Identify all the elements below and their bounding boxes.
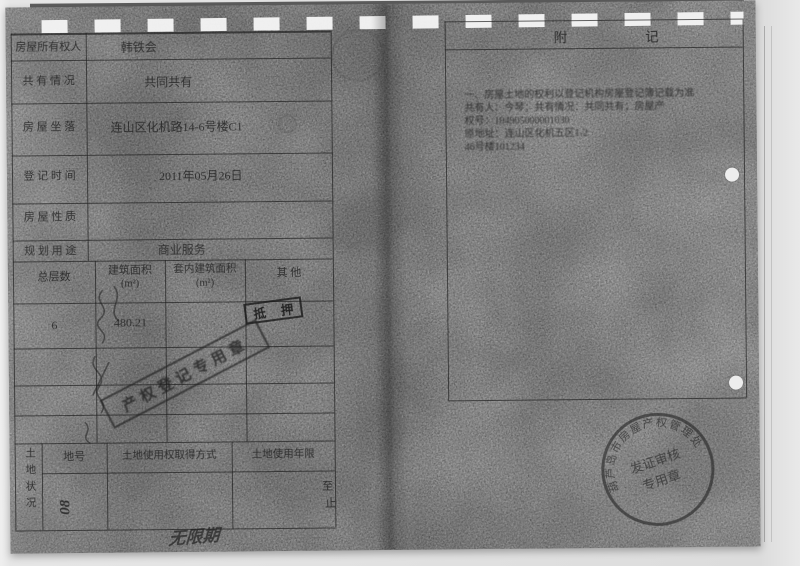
owner-name: 韩铁会 — [121, 41, 157, 55]
margin-handwriting-scribble — [64, 272, 156, 448]
col-header-other: 其 他 — [245, 266, 333, 279]
col-header-plot-number: 地号 — [42, 451, 107, 464]
handwritten-term-note: 无限期 — [168, 527, 220, 550]
punch-hole-bottom — [729, 376, 743, 390]
row-label-house-nature: 房 屋 性 质 — [12, 211, 87, 224]
row-label-location: 房 屋 坐 落 — [11, 121, 86, 134]
col-header-land-acquisition: 土地使用权取得方式 — [107, 449, 232, 462]
appendix-notes: 一、房屋土地的权利以登记机构房屋登记簿记载为准 共有人：今琴；共有情况：共同共有… — [464, 87, 733, 155]
location-value: 连山区化机路14-6号楼C1 — [110, 120, 242, 134]
paper-stack-edge — [764, 26, 765, 542]
reg-date-value: 2011年05月26日 — [159, 169, 243, 183]
appendix-note-line: 一、房屋土地的权利以登记机构房屋登记簿记载为准 — [464, 87, 732, 103]
term-from-char: 至 — [322, 480, 333, 492]
appendix-note-line: 46号楼101234 — [465, 139, 733, 155]
scanned-document: 房屋所有权人 韩铁会 共 有 情 况 共同共有 房 屋 坐 落 连山区化机路14… — [5, 0, 760, 553]
handwritten-plot-note: 08 — [57, 500, 74, 515]
row-label-reg-date: 登 记 时 间 — [12, 170, 87, 183]
center-fold-shadow — [371, 4, 408, 550]
col-header-land-term: 土地使用年限 — [232, 448, 335, 461]
term-to-char: 止 — [325, 497, 336, 509]
ghost-stamp-mark — [332, 29, 384, 81]
row-label-co-ownership: 共 有 情 况 — [11, 75, 86, 88]
row-label-planned-use: 规 划 用 途 — [13, 245, 88, 258]
paper-stack-edge — [771, 26, 772, 542]
row-label-owner: 房屋所有权人 — [11, 41, 86, 54]
ghost-stamp-mark-small — [278, 115, 296, 133]
co-ownership-value: 共同共有 — [144, 76, 192, 90]
planned-use-value: 商业服务 — [158, 244, 206, 258]
punch-hole-top — [725, 168, 739, 182]
land-status-side-label: 土地状况 — [24, 447, 36, 527]
scanner-background: 房屋所有权人 韩铁会 共 有 情 况 共同共有 房 屋 坐 落 连山区化机路14… — [0, 0, 800, 566]
col-header-inner-area: 套内建筑面积 — [165, 263, 245, 275]
official-round-seal: 葫芦岛市房屋产权管理处 发证审核 专用章 — [591, 403, 724, 536]
appendix-title: 附记 — [554, 25, 737, 47]
inner-area-unit: (m²) — [165, 277, 245, 289]
